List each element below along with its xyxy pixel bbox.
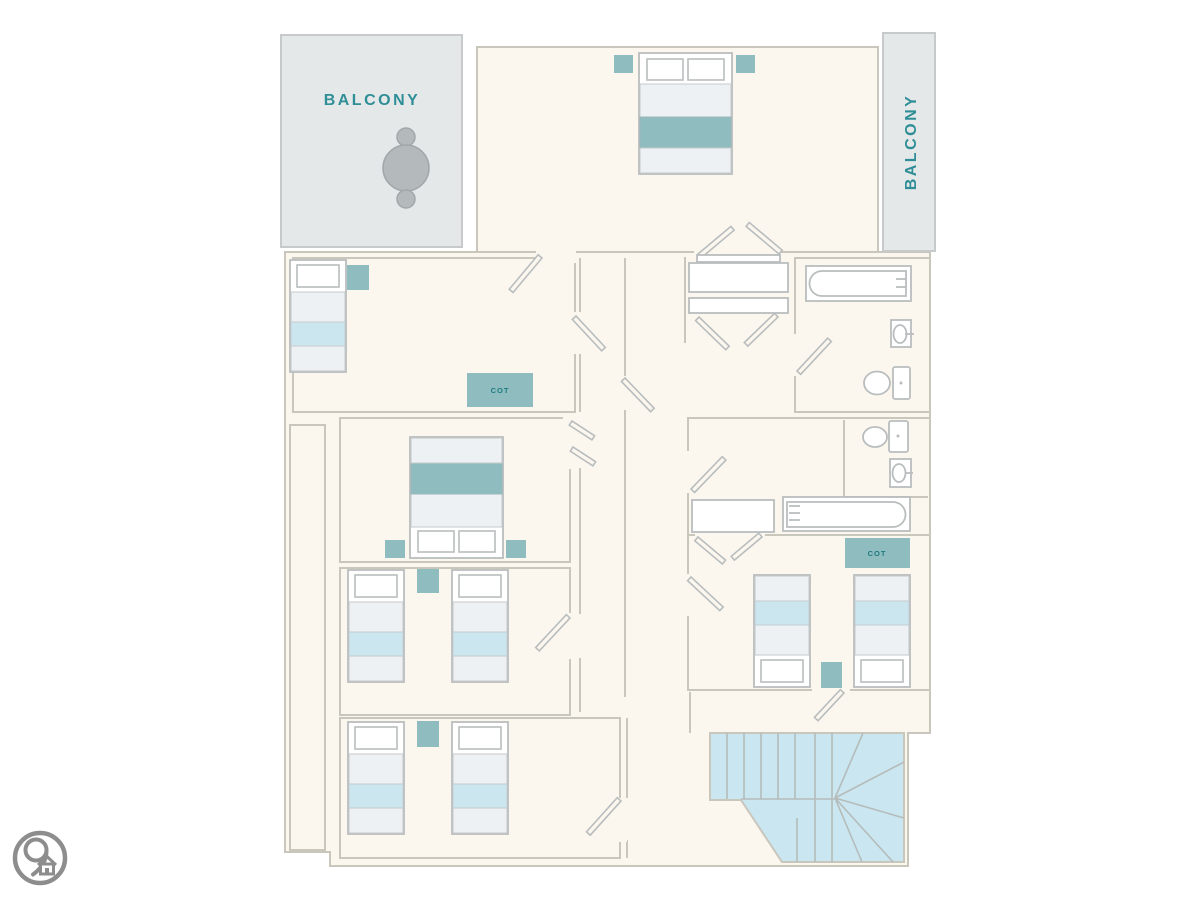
balcony-right-label: BALCONY	[903, 94, 920, 191]
floor-plan-page: BALCONY BALCONY	[0, 0, 1200, 900]
sink	[891, 320, 914, 347]
single-bed	[348, 570, 404, 682]
single-bed	[348, 722, 404, 834]
double-bed	[639, 53, 732, 174]
sink	[890, 459, 913, 487]
cot-right: COT	[845, 538, 910, 568]
balcony-left-label: BALCONY	[324, 92, 421, 109]
nightstand	[614, 55, 633, 73]
map-pin-home-icon	[26, 840, 57, 875]
balcony-left: BALCONY	[281, 35, 462, 247]
nightstand	[417, 569, 439, 593]
bathtub	[806, 266, 911, 301]
nightstand	[506, 540, 526, 558]
nightstand	[385, 540, 405, 558]
cot-right-label: COT	[868, 549, 887, 558]
cot-left-label: COT	[491, 386, 510, 395]
single-bed	[452, 722, 508, 834]
wardrobe	[689, 255, 788, 313]
bathtub	[783, 497, 910, 531]
brand-logo	[15, 833, 65, 883]
nightstand	[347, 265, 369, 290]
side-shaft	[290, 425, 325, 850]
floor-plan-drawing: BALCONY BALCONY	[0, 0, 1200, 900]
single-bed	[854, 575, 910, 687]
balcony-right: BALCONY	[883, 33, 935, 251]
shelf-unit	[692, 500, 774, 532]
nightstand	[417, 721, 439, 747]
nightstand	[821, 662, 842, 688]
double-bed	[410, 437, 503, 558]
single-bed	[290, 260, 346, 372]
cot-left: COT	[467, 373, 533, 407]
nightstand	[736, 55, 755, 73]
single-bed	[452, 570, 508, 682]
single-bed	[754, 575, 810, 687]
